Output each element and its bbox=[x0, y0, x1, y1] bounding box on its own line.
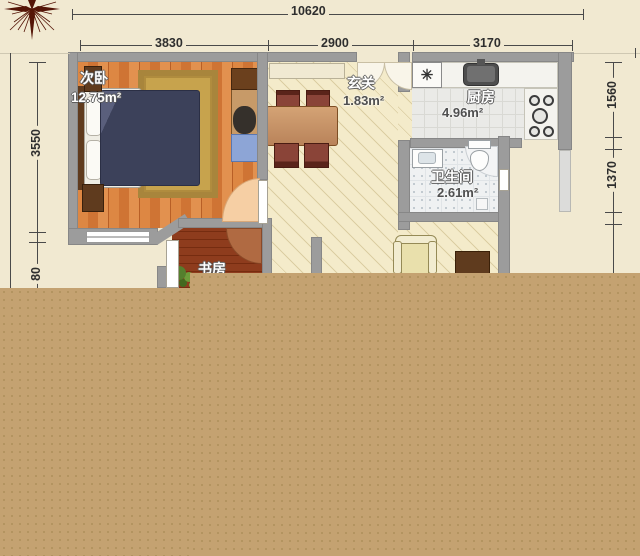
floor-plan: 10620 3830 2900 3170 3550 80 1560 1370 bbox=[0, 0, 640, 556]
bedroom-window bbox=[86, 231, 150, 243]
right-wall-window bbox=[559, 150, 571, 212]
bedroom-door-leaf bbox=[258, 180, 268, 224]
bedroom-area-label: 12.75m² bbox=[71, 90, 121, 105]
kitchen-entry-floor bbox=[398, 92, 412, 140]
top-wall-left bbox=[70, 52, 357, 62]
stove-burner bbox=[543, 95, 554, 106]
tick bbox=[583, 9, 584, 20]
mask-block-right bbox=[190, 273, 640, 556]
bathroom-right-wall bbox=[498, 136, 510, 288]
hall-area-label: 1.83m² bbox=[343, 93, 384, 108]
bedroom-right-wall bbox=[257, 52, 268, 180]
armchair-seat bbox=[401, 243, 429, 274]
tick bbox=[29, 242, 46, 243]
tick bbox=[413, 40, 414, 51]
dining-chair bbox=[304, 143, 329, 168]
bathroom-bottom-wall bbox=[398, 212, 510, 222]
desk-chair bbox=[233, 106, 256, 134]
desk-shelf bbox=[231, 68, 258, 90]
top-wall-right bbox=[412, 52, 574, 62]
bathroom-door-leaf bbox=[499, 169, 509, 191]
dining-chair bbox=[274, 143, 299, 168]
dim-left-seg-1: 3550 bbox=[29, 126, 43, 160]
toilet-tank bbox=[468, 140, 491, 149]
tick bbox=[605, 62, 622, 63]
kitchen-label: 厨房 bbox=[467, 87, 495, 107]
dim-top-seg-1: 3830 bbox=[152, 36, 186, 50]
water-heater-box: ✳ bbox=[412, 62, 442, 88]
armchair-arm-right bbox=[428, 241, 437, 274]
bathroom-sink bbox=[418, 152, 436, 164]
dim-right-seg-2: 1370 bbox=[605, 158, 619, 192]
dim-line-left-inner bbox=[37, 63, 38, 288]
dim-right-seg-1: 1560 bbox=[605, 78, 619, 112]
tick bbox=[605, 149, 622, 150]
stove-burner bbox=[529, 126, 540, 137]
tick bbox=[605, 224, 622, 225]
tick bbox=[80, 40, 81, 51]
stove-burner bbox=[543, 126, 554, 137]
stove-burner bbox=[532, 108, 548, 124]
compass-icon bbox=[2, 0, 62, 50]
nightstand bbox=[82, 184, 104, 212]
dim-left-seg-2: 80 bbox=[29, 264, 43, 284]
bedroom-label: 次卧 bbox=[80, 68, 108, 88]
tick bbox=[605, 137, 622, 138]
stove-burner bbox=[529, 95, 540, 106]
dim-line-left-outer bbox=[10, 53, 11, 288]
faucet bbox=[477, 59, 485, 65]
hall-label: 玄关 bbox=[347, 73, 375, 93]
kitchen-sink-basin bbox=[467, 66, 495, 82]
mask-block-left bbox=[0, 288, 190, 556]
tick bbox=[29, 62, 46, 63]
tick bbox=[572, 40, 573, 51]
tick bbox=[268, 40, 269, 51]
dim-top-seg-3: 3170 bbox=[470, 36, 504, 50]
tick bbox=[605, 212, 622, 213]
tick bbox=[635, 48, 636, 58]
bathroom-label: 卫生间 bbox=[431, 167, 473, 187]
dining-table bbox=[266, 106, 338, 146]
kitchen-area-label: 4.96m² bbox=[442, 105, 483, 120]
tick bbox=[29, 232, 46, 233]
dim-top-seg-2: 2900 bbox=[318, 36, 352, 50]
extension-line-top-right bbox=[574, 53, 640, 54]
study-door-leaf bbox=[166, 240, 179, 288]
tick bbox=[72, 9, 73, 20]
printer bbox=[231, 134, 258, 162]
asterisk-symbol: ✳ bbox=[421, 67, 434, 84]
console-cabinet bbox=[269, 63, 345, 79]
dim-top-total-label: 10620 bbox=[288, 4, 329, 18]
left-wall bbox=[68, 52, 78, 245]
right-wall bbox=[558, 52, 572, 150]
bathroom-area-label: 2.61m² bbox=[437, 185, 478, 200]
